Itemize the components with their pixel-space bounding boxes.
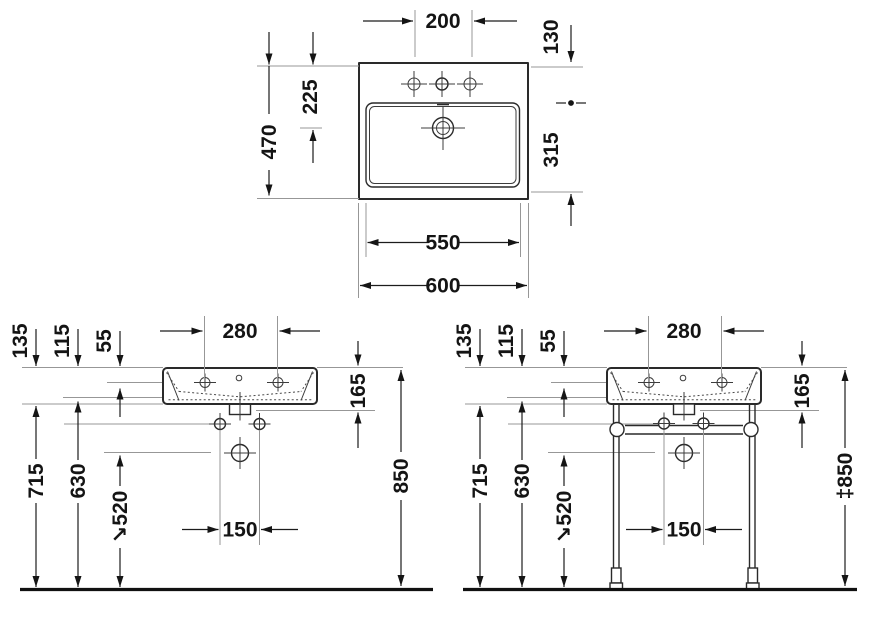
plan-dimensions: 200 130 315 470 225 [257,10,586,298]
dim-label-715: 715 [469,463,492,498]
dim-label-130: 130 [540,19,563,54]
console-frame [610,404,759,589]
dim-label-115: 115 [495,324,518,358]
tap-hole-left-icon [401,71,427,97]
dim-label-520: ↘520 [553,491,576,544]
dim-label-520: ↘520 [109,491,132,544]
rail-boss-left [610,423,624,437]
trap-hole-icon-console [668,437,700,469]
tap-hole-icons-front [194,374,289,392]
tap-hole-center-icon [429,71,455,97]
wall-dimensions: 135 715 115 630 55 ↘520 165 850 [9,316,413,587]
dim-label-280: 280 [666,320,701,343]
reference-dot-icon [556,100,586,106]
tap-hole-icons-plan [401,71,483,97]
dim-label-200: 200 [425,10,460,33]
overflow-hole-icon [236,375,242,381]
dim-label-150: 150 [666,519,701,542]
dim-label-630: 630 [511,463,534,498]
dim-label-165: 165 [347,373,370,408]
dim-label-550: 550 [425,232,460,255]
dim-label-280: 280 [222,320,257,343]
dim-label-165: 165 [791,373,814,408]
rail-boss-right [744,423,758,437]
adjustable-foot-left [612,568,622,583]
dim-label-600: 600 [425,275,460,298]
dim-label-315: 315 [540,132,563,167]
dim-label-225: 225 [299,79,322,114]
technical-drawing: 200 130 315 470 225 [0,0,884,630]
tap-hole-right-icon [457,71,483,97]
dim-label-630: 630 [67,463,90,498]
drawing-canvas: 200 130 315 470 225 [0,0,884,630]
wall-mounted-view: 135 715 115 630 55 ↘520 165 850 [9,316,433,590]
adjustable-foot-right [748,568,758,583]
dim-label-55: 55 [93,329,116,353]
dim-label-115: 115 [51,324,74,358]
console-dimensions: 135 715 115 630 55 ↘520 165 ‡850 [453,316,857,587]
dim-label-55: 55 [537,329,560,353]
dim-label-470: 470 [258,124,281,159]
dim-label-850: 850 [390,458,413,493]
trap-hole-icon-wall [224,437,256,469]
witness-lines-wall [22,368,403,453]
dim-label-850-adjustable: ‡850 [834,453,857,500]
dim-label-150: 150 [222,519,257,542]
plan-view: 200 130 315 470 225 [257,10,586,298]
drain-icon-plan [421,106,465,150]
dim-label-135: 135 [453,323,476,358]
console-view: 135 715 115 630 55 ↘520 165 ‡850 [453,316,857,590]
dim-label-715: 715 [25,463,48,498]
dim-label-135: 135 [9,323,32,358]
